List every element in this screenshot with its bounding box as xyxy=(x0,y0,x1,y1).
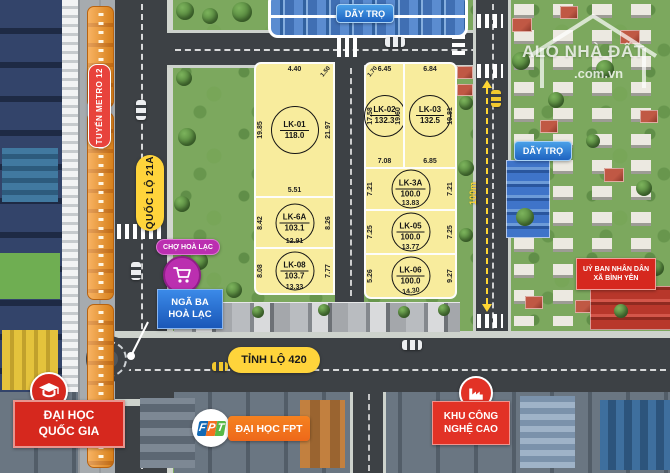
plot-LK-02: 6.45 1.70 17.58 19.60 7.08 LK-02 132.3 xyxy=(364,62,405,169)
tree xyxy=(178,128,196,146)
dim-right: 7.21 xyxy=(447,182,454,196)
hitech-line1: KHU CÔNG xyxy=(444,410,498,423)
dim-left: 7.25 xyxy=(367,225,374,239)
tree xyxy=(176,2,194,20)
taxi xyxy=(491,90,501,107)
committee-line1: UỶ BAN NHÂN DÂN xyxy=(583,265,649,274)
house xyxy=(604,168,624,182)
dim-top: 6.84 xyxy=(423,66,437,73)
plot-id: LK-06 xyxy=(396,267,424,277)
watermark-domain: .com.vn xyxy=(574,66,623,81)
tree xyxy=(458,160,474,176)
plot-area: 100.0 xyxy=(400,191,420,199)
junction-line2: HOÀ LẠC xyxy=(168,309,211,321)
factory-icon xyxy=(467,385,485,401)
plot-LK-03: 6.84 19.81 6.85 LK-03 132.5 xyxy=(403,62,457,169)
rowhouses-right-text: DÃY TRỌ xyxy=(523,146,563,156)
dim-bottom: 5.51 xyxy=(288,187,302,194)
building-block xyxy=(600,400,670,470)
provincial-road-label: TỈNH LỘ 420 xyxy=(228,347,320,373)
tree xyxy=(318,304,330,316)
tree xyxy=(614,304,628,318)
plot-badge: LK-05 100.0 xyxy=(391,213,430,252)
plot-id: LK-02 xyxy=(370,106,398,116)
tree xyxy=(398,306,410,318)
dim-right: 7.77 xyxy=(325,264,332,278)
committee-line2: XÃ BÌNH YÊN xyxy=(594,274,639,283)
fpt-university-label: ĐẠI HỌC FPT xyxy=(228,416,310,441)
plot-area: 118.0 xyxy=(285,132,305,140)
dim-right: 8.26 xyxy=(325,216,332,230)
plot-area: 132.3 xyxy=(374,117,394,125)
plot-badge: LK-3A 100.0 xyxy=(391,170,430,209)
tree xyxy=(176,70,192,86)
road-internal xyxy=(335,62,364,302)
plot-area: 103.1 xyxy=(284,224,304,232)
tree xyxy=(548,92,564,108)
fpt-logo: F P T xyxy=(196,421,225,436)
dim-right: 7.25 xyxy=(447,225,454,239)
building-block xyxy=(520,396,575,468)
dim-bottom: 6.85 xyxy=(423,158,437,165)
metro-label: TUYẾN METRO 12 xyxy=(88,64,111,148)
plot-LK-01: 4.40 1.50 19.85 21.97 5.51 LK-01 118.0 xyxy=(254,62,335,198)
dim-bottom: 7.08 xyxy=(378,158,392,165)
junction-label: NGÃ BA HOÀ LẠC xyxy=(157,289,223,329)
tree xyxy=(202,8,218,24)
plot-id: LK-01 xyxy=(280,121,308,131)
dim-corner: 1.50 xyxy=(320,66,332,79)
car xyxy=(402,340,422,350)
market-text: CHỢ HOÀ LẠC xyxy=(163,244,213,251)
national-university-line2: QUỐC GIA xyxy=(39,424,100,440)
arrow-up-icon xyxy=(482,80,492,88)
car xyxy=(131,262,141,280)
junction-line1: NGÃ BA xyxy=(171,297,208,309)
hitech-park-label: KHU CÔNG NGHỆ CAO xyxy=(432,401,510,445)
watermark: ALO NHÀ ĐẤT .com.vn xyxy=(516,10,670,94)
rowhouses-top-label: DÃY TRỌ xyxy=(336,4,394,23)
house xyxy=(640,110,658,123)
building-block xyxy=(2,148,58,202)
tree xyxy=(516,208,534,226)
dim-left: 19.85 xyxy=(257,121,264,139)
tree xyxy=(174,196,190,212)
crosswalk xyxy=(477,64,503,78)
plot-id: LK-3A xyxy=(396,180,426,190)
tree xyxy=(586,134,600,148)
plot-badge: LK-6A 103.1 xyxy=(275,203,314,242)
plot-area: 132.5 xyxy=(420,117,440,125)
tree xyxy=(438,304,450,316)
dim-right: 9.27 xyxy=(447,269,454,283)
plot-id: LK-08 xyxy=(280,262,308,272)
dim-left: 5.26 xyxy=(367,269,374,283)
dim-left: 8.42 xyxy=(257,216,264,230)
crosswalk xyxy=(477,14,503,28)
dim-left: 8.08 xyxy=(257,264,264,278)
tree xyxy=(232,2,252,22)
plot-badge: LK-03 132.5 xyxy=(409,95,451,137)
fpt-letter-t: T xyxy=(214,421,225,436)
dim-right: 21.97 xyxy=(325,121,332,139)
plot-id: LK-03 xyxy=(416,106,444,116)
plot-badge: LK-01 118.0 xyxy=(271,106,319,154)
park-block xyxy=(0,253,60,299)
real-estate-map: 4.40 1.50 19.85 21.97 5.51 LK-01 118.0 8… xyxy=(0,0,670,473)
plot-id: LK-6A xyxy=(280,213,310,223)
dim-top: 6.45 xyxy=(378,66,392,73)
highway-label: QUỐC LỘ 21A xyxy=(136,155,164,231)
plot-LK-08: 8.08 7.77 13.33 LK-08 103.7 xyxy=(254,247,335,295)
committee-label: UỶ BAN NHÂN DÂN XÃ BÌNH YÊN xyxy=(576,258,656,290)
building-block xyxy=(140,398,195,468)
plot-LK-3A: 7.21 7.21 13.83 LK-3A 100.0 xyxy=(364,167,457,211)
crosswalk xyxy=(477,314,503,328)
plot-LK-6A: 8.42 8.26 12.91 LK-6A 103.1 xyxy=(254,196,335,249)
national-university-label: ĐẠI HỌC QUỐC GIA xyxy=(13,400,125,448)
plot-LK-05: 7.25 7.25 13.77 LK-05 100.0 xyxy=(364,209,457,255)
house xyxy=(540,120,558,133)
rowhouses-right xyxy=(506,160,550,238)
house xyxy=(457,66,473,79)
market-label: CHỢ HOÀ LẠC xyxy=(156,239,220,255)
committee-building xyxy=(590,286,670,330)
graduation-cap-icon xyxy=(38,382,60,400)
rowhouses-right-label: DÃY TRỌ xyxy=(514,141,572,161)
plot-area: 100.0 xyxy=(400,278,420,286)
tree xyxy=(636,180,652,196)
house xyxy=(457,84,473,96)
road-bottom-city xyxy=(350,392,386,473)
plot-badge: LK-06 100.0 xyxy=(391,257,430,296)
car xyxy=(136,100,146,120)
metro-label-text: TUYẾN METRO 12 xyxy=(95,68,104,144)
plot-badge: LK-02 132.3 xyxy=(364,95,406,137)
plot-area: 100.0 xyxy=(400,234,420,242)
hitech-line2: NGHỆ CAO xyxy=(444,423,498,436)
watermark-brand: ALO NHÀ ĐẤT xyxy=(522,42,645,62)
shopping-cart-icon xyxy=(172,265,192,285)
highway-label-text: QUỐC LỘ 21A xyxy=(145,156,156,229)
provincial-road-text: TỈNH LỘ 420 xyxy=(241,354,306,366)
rowhouses-top-text: DÃY TRỌ xyxy=(345,9,385,19)
scale-label: 100m xyxy=(468,182,478,205)
dim-top: 4.40 xyxy=(288,66,302,73)
plot-LK-06: 5.26 9.27 14.30 LK-06 100.0 xyxy=(364,253,457,299)
plot-area: 103.7 xyxy=(284,273,304,281)
dim-left: 7.21 xyxy=(367,182,374,196)
car xyxy=(385,37,405,47)
tree xyxy=(226,282,242,298)
taxi xyxy=(212,362,228,371)
crosswalk xyxy=(337,37,361,57)
plot-id: LK-05 xyxy=(396,223,424,233)
house xyxy=(525,296,543,309)
arrow-down-icon xyxy=(482,304,492,312)
fpt-logo-circle: F P T xyxy=(192,409,230,447)
plot-badge: LK-08 103.7 xyxy=(275,252,314,291)
national-university-line1: ĐẠI HỌC xyxy=(44,408,95,424)
tree xyxy=(459,96,473,110)
tree xyxy=(459,228,473,242)
measure-line xyxy=(486,88,488,304)
pointer-line xyxy=(118,318,154,364)
tree xyxy=(252,306,264,318)
crosswalk xyxy=(452,35,465,59)
fpt-university-text: ĐẠI HỌC FPT xyxy=(235,423,302,435)
